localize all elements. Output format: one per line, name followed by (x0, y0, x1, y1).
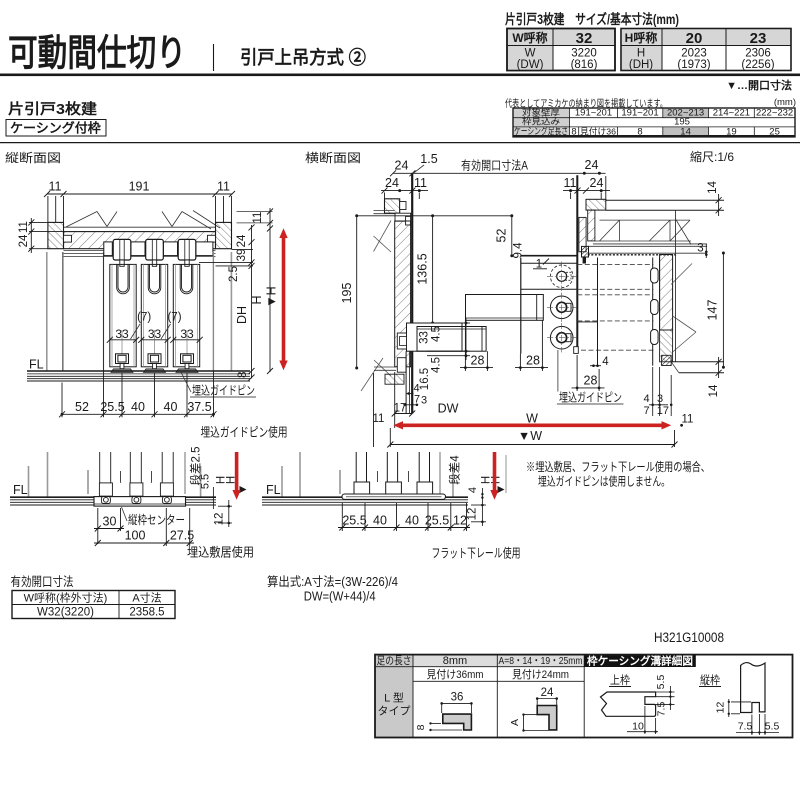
svg-text:DW: DW (438, 402, 459, 416)
svg-text:11: 11 (682, 414, 694, 426)
svg-text:(7): (7) (137, 312, 151, 324)
svg-text:(7): (7) (167, 312, 181, 324)
svg-text:縦断面図: 縦断面図 (5, 150, 61, 165)
svg-text:27.5: 27.5 (170, 529, 194, 543)
svg-text:ケーシング付枠: ケーシング付枠 (10, 121, 101, 136)
svg-text:4.5: 4.5 (431, 357, 443, 373)
svg-text:24: 24 (590, 176, 604, 190)
svg-text:11: 11 (414, 176, 427, 190)
svg-text:縦枠: 縦枠 (700, 673, 720, 687)
svg-text:縦枠センター: 縦枠センター (128, 513, 185, 527)
svg-text:32: 32 (576, 30, 593, 47)
svg-text:埋込敷居使用: 埋込敷居使用 (187, 545, 254, 560)
svg-text:11: 11 (217, 180, 230, 194)
svg-text:24: 24 (385, 176, 399, 190)
svg-text:12: 12 (467, 508, 479, 521)
svg-text:24: 24 (541, 687, 554, 699)
svg-text:20: 20 (686, 30, 703, 47)
svg-text:埋込ガイドピン使用: 埋込ガイドピン使用 (201, 425, 288, 440)
svg-text:見付け36mm: 見付け36mm (427, 668, 484, 681)
svg-text:段差4: 段差4 (448, 455, 462, 485)
svg-text:埋込ガイドピン: 埋込ガイドピン (559, 391, 622, 405)
svg-text:W呼称(枠外寸法): W呼称(枠外寸法) (24, 591, 108, 605)
svg-text:11: 11 (18, 221, 30, 233)
svg-text:3: 3 (421, 395, 427, 407)
svg-text:3: 3 (697, 243, 703, 255)
svg-text:17: 17 (657, 405, 669, 417)
svg-text:12: 12 (715, 702, 727, 714)
svg-text:8: 8 (415, 724, 427, 730)
svg-text:11: 11 (252, 212, 264, 224)
svg-text:11: 11 (373, 413, 385, 425)
svg-text:(mm): (mm) (774, 97, 796, 108)
svg-text:191~201: 191~201 (621, 107, 658, 118)
svg-text:40: 40 (164, 400, 178, 414)
svg-text:14: 14 (680, 127, 691, 138)
svg-text:枠ケーシング溝詳細図: 枠ケーシング溝詳細図 (587, 654, 693, 668)
svg-text:W32(3220): W32(3220) (37, 607, 94, 619)
svg-text:5.5: 5.5 (765, 721, 780, 733)
svg-text:DW=(W+44)/4: DW=(W+44)/4 (304, 590, 376, 604)
svg-text:算出式:A寸法=(3W-226)/4: 算出式:A寸法=(3W-226)/4 (267, 574, 398, 589)
svg-text:足の長さ: 足の長さ (377, 655, 412, 667)
svg-text:A寸法: A寸法 (132, 591, 161, 605)
svg-text:7.5: 7.5 (738, 721, 753, 733)
svg-text:7: 7 (643, 405, 649, 417)
svg-text:▼H: ▼H (265, 286, 279, 307)
svg-text:8mm: 8mm (443, 655, 467, 667)
svg-text:2.5: 2.5 (228, 266, 240, 282)
svg-text:4: 4 (643, 393, 649, 405)
svg-text:可動間仕切り: 可動間仕切り (8, 33, 186, 74)
svg-text:10: 10 (632, 721, 644, 733)
svg-text:埋込ガイドピン: 埋込ガイドピン (192, 384, 255, 398)
svg-text:23: 23 (750, 30, 767, 47)
svg-text:H: H (250, 295, 264, 304)
svg-text:28: 28 (526, 354, 540, 368)
svg-text:FL: FL (13, 483, 28, 497)
svg-text:4: 4 (467, 487, 479, 493)
svg-text:136.5: 136.5 (416, 253, 430, 284)
svg-text:W呼称: W呼称 (512, 30, 547, 45)
svg-text:147: 147 (706, 300, 720, 321)
svg-text:見付け24mm: 見付け24mm (512, 668, 569, 681)
svg-text:(816): (816) (571, 59, 598, 71)
svg-text:FL: FL (266, 483, 281, 497)
svg-text:有効開口寸法: 有効開口寸法 (11, 574, 74, 589)
svg-text:縮尺:1/6: 縮尺:1/6 (690, 149, 734, 164)
svg-text:12: 12 (453, 514, 467, 528)
svg-text:4.5: 4.5 (431, 326, 443, 342)
svg-text:40: 40 (131, 400, 145, 414)
svg-text:195: 195 (340, 283, 354, 304)
svg-text:28: 28 (584, 374, 598, 388)
svg-text:222~232: 222~232 (756, 107, 793, 118)
svg-text:片引戸3枚建: 片引戸3枚建 (8, 100, 98, 118)
svg-text:(DH): (DH) (629, 59, 653, 71)
svg-text:8: 8 (637, 127, 642, 138)
svg-text:214~221: 214~221 (713, 107, 750, 118)
svg-text:4: 4 (602, 356, 609, 368)
svg-text:14: 14 (708, 384, 720, 397)
svg-text:W: W (525, 48, 536, 60)
svg-text:40: 40 (405, 514, 419, 528)
svg-text:24: 24 (585, 158, 599, 172)
svg-text:8: 8 (571, 127, 576, 138)
svg-text:フラット下レール使用: フラット下レール使用 (432, 546, 521, 561)
svg-text:191~201: 191~201 (575, 107, 612, 118)
svg-text:W: W (526, 412, 538, 426)
svg-text:DH: DH (235, 306, 249, 324)
svg-text:タイプ: タイプ (378, 705, 411, 718)
svg-text:1.5: 1.5 (420, 152, 437, 166)
svg-text:※埋込敷居、フラット下レール使用の場合、: ※埋込敷居、フラット下レール使用の場合、 (526, 459, 710, 474)
svg-text:▼W: ▼W (518, 429, 542, 443)
svg-text:25.5: 25.5 (100, 400, 124, 414)
svg-text:19: 19 (726, 127, 737, 138)
svg-text:25.5: 25.5 (425, 514, 449, 528)
svg-text:A=8・14・19・25mm: A=8・14・19・25mm (499, 655, 583, 667)
svg-text:191: 191 (129, 180, 150, 194)
svg-text:39: 39 (236, 249, 248, 262)
svg-text:H321G10008: H321G10008 (654, 630, 724, 645)
svg-text:52: 52 (75, 400, 89, 414)
svg-text:16.5: 16.5 (419, 368, 431, 390)
svg-text:2358.5: 2358.5 (129, 607, 164, 619)
svg-text:24: 24 (18, 234, 30, 247)
svg-text:28: 28 (471, 354, 485, 368)
svg-text:ケーシング足長さ: ケーシング足長さ (514, 126, 568, 138)
svg-text:37.5: 37.5 (187, 400, 211, 414)
svg-text:40: 40 (373, 514, 387, 528)
svg-text:片引戸3枚建 サイズ/基本寸法(mm): 片引戸3枚建 サイズ/基本寸法(mm) (505, 11, 679, 27)
svg-text:100: 100 (125, 529, 146, 543)
svg-text:引戸上吊方式 ②: 引戸上吊方式 ② (240, 47, 366, 68)
svg-text:33: 33 (419, 331, 431, 344)
svg-text:30: 30 (103, 515, 117, 529)
svg-text:8: 8 (237, 372, 249, 378)
svg-text:11: 11 (49, 180, 62, 194)
svg-text:11: 11 (564, 176, 577, 190)
svg-text:有効開口寸法A: 有効開口寸法A (461, 158, 528, 173)
svg-text:2306: 2306 (745, 48, 771, 60)
svg-text:A: A (509, 719, 521, 726)
svg-text:5.5: 5.5 (655, 675, 667, 690)
svg-text:FL: FL (29, 358, 44, 372)
svg-text:H呼称: H呼称 (625, 30, 658, 45)
svg-text:▼…開口寸法: ▼…開口寸法 (726, 78, 792, 92)
svg-text:横断面図: 横断面図 (305, 150, 361, 165)
svg-text:36: 36 (451, 692, 464, 704)
svg-text:14: 14 (707, 181, 719, 194)
svg-text:52: 52 (495, 229, 509, 243)
svg-text:H: H (491, 476, 503, 484)
svg-text:3220: 3220 (571, 48, 597, 60)
svg-text:25: 25 (769, 127, 780, 138)
svg-text:24: 24 (236, 234, 248, 247)
svg-text:25.5: 25.5 (342, 514, 366, 528)
svg-text:上枠: 上枠 (610, 673, 630, 687)
svg-text:埋込ガイドピンは使用しません。: 埋込ガイドピンは使用しません。 (538, 474, 670, 489)
svg-text:L 型: L 型 (384, 691, 404, 705)
svg-text:7.5: 7.5 (656, 702, 668, 717)
svg-text:H: H (637, 48, 645, 60)
svg-text:(2256): (2256) (741, 59, 774, 71)
svg-text:(DW): (DW) (517, 59, 544, 71)
svg-text:12: 12 (214, 513, 226, 526)
svg-text:5.5: 5.5 (200, 474, 212, 489)
svg-text:2023: 2023 (681, 48, 707, 60)
svg-text:24: 24 (395, 159, 409, 173)
svg-text:見付け36: 見付け36 (580, 127, 616, 137)
svg-text:(1973): (1973) (677, 59, 710, 71)
